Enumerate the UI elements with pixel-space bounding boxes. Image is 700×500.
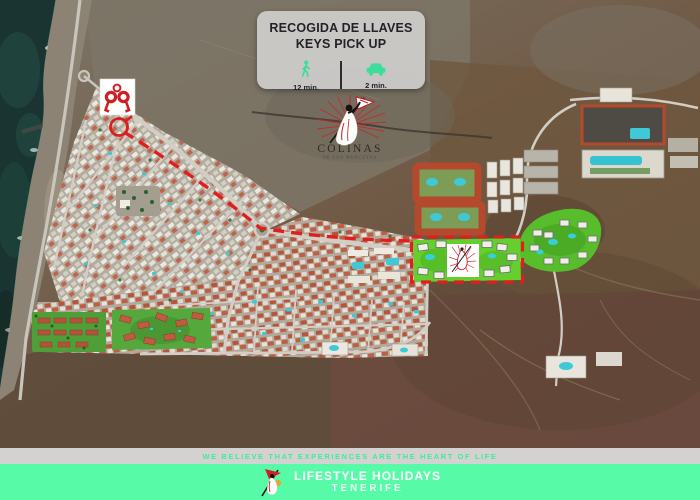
tagline-band: WE BELIEVE THAT EXPERIENCES ARE THE HEAR…	[0, 448, 700, 464]
resort-location-flyer: COLINAS DE LOS MENCEYES RECOGIDA DE LLAV…	[0, 0, 700, 500]
car-icon	[365, 60, 387, 77]
flamenco-dancer-icon	[259, 467, 283, 498]
map-logo-subtitle: DE LOS MENCEYES	[323, 155, 377, 160]
town-plaza	[116, 186, 160, 216]
walk-time-label: 12 min.	[293, 83, 319, 92]
tagline-text: WE BELIEVE THAT EXPERIENCES ARE THE HEAR…	[202, 452, 497, 461]
footer-brand-region: TENERIFE	[294, 483, 441, 495]
walking-person-icon	[299, 60, 313, 79]
footer-band: LIFESTYLE HOLIDAYS TENERIFE	[0, 464, 700, 500]
info-title-es: RECOGIDA DE LLAVES	[269, 21, 412, 37]
drive-time-label: 2 min.	[365, 81, 387, 90]
keys-pickup-info-box: RECOGIDA DE LLAVES KEYS PICK UP 12 min.	[257, 11, 425, 89]
info-title-en: KEYS PICK UP	[296, 37, 387, 53]
green-resort-highlighted	[413, 238, 521, 282]
map-logo-brand: COLINAS	[317, 143, 382, 155]
resort-logo-card	[447, 244, 479, 277]
keys-pickup-marker	[100, 79, 135, 115]
garden-complexes-southwest	[32, 308, 212, 352]
divider	[340, 61, 342, 89]
footer-brand-name: LIFESTYLE HOLIDAYS	[294, 469, 441, 483]
